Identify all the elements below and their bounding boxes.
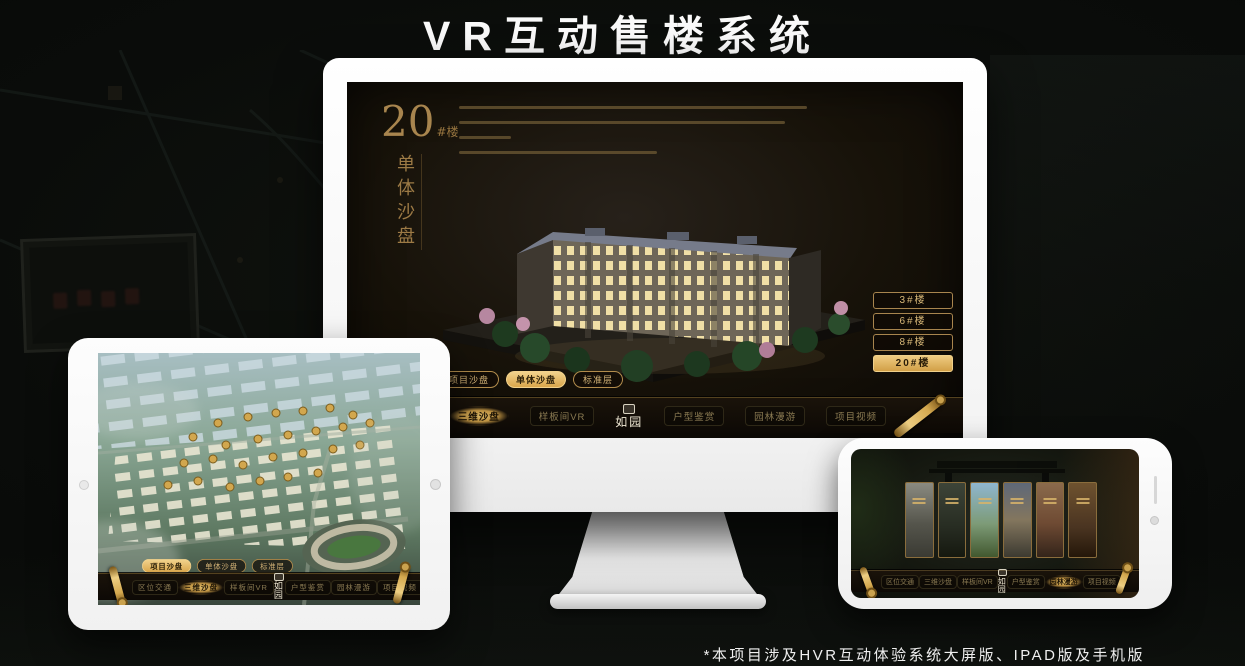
gallery-panel-3[interactable]	[970, 482, 999, 558]
ipad-home-button[interactable]	[430, 479, 441, 490]
nav-item-showroom-vr[interactable]: 样板间VR	[530, 406, 595, 426]
gallery-panel-6[interactable]	[1068, 482, 1097, 558]
ipad-sandbox-subtabs: 项目沙盘 单体沙盘 标准层	[142, 559, 293, 573]
brand-logo-text: 如园	[615, 416, 643, 428]
phone-frame: 区位交通 三维沙盘 样板间VR 如园 户型鉴赏 园林漫游 项目视频	[838, 438, 1172, 609]
phone-nav-item-garden-roam[interactable]: 园林漫游	[1045, 575, 1083, 589]
nav-item-unit-gallery[interactable]: 户型鉴赏	[664, 406, 724, 426]
ipad-brand-seal-icon	[274, 573, 284, 581]
building-number: 20	[381, 97, 434, 146]
nav-item-project-video[interactable]: 项目视频	[826, 406, 886, 426]
ipad-nav-item-3d-sandbox[interactable]: 三维沙盘	[178, 580, 224, 595]
phone-screen: 区位交通 三维沙盘 样板间VR 如园 户型鉴赏 园林漫游 项目视频	[851, 449, 1139, 598]
floor-selector: 3#楼 6#楼 8#楼 20#楼	[873, 292, 953, 372]
sandbox-subtabs: 项目沙盘 单体沙盘 标准层	[439, 371, 623, 388]
section-title-vertical: 单体沙盘	[391, 154, 422, 250]
subtab-single-sandbox[interactable]: 单体沙盘	[506, 371, 566, 388]
phone-brand-logo: 如园	[998, 569, 1007, 594]
phone-nav-item-showroom-vr[interactable]: 样板间VR	[957, 575, 998, 589]
ipad-nav-item-garden-roam[interactable]: 园林漫游	[331, 580, 377, 595]
ipad-nav-item-showroom-vr[interactable]: 样板间VR	[224, 580, 274, 595]
floor-button-8[interactable]: 8#楼	[873, 334, 953, 351]
building-number-heading: 20#楼	[381, 100, 459, 144]
nav-item-garden-roam[interactable]: 园林漫游	[745, 406, 805, 426]
floor-button-3[interactable]: 3#楼	[873, 292, 953, 309]
subtab-standard-floor[interactable]: 标准层	[573, 371, 623, 388]
ipad-nav-item-unit-gallery[interactable]: 户型鉴赏	[285, 580, 331, 595]
brand-seal-icon	[623, 404, 635, 414]
background-photo-right	[990, 55, 1245, 435]
ipad-subtab-single-sandbox[interactable]: 单体沙盘	[197, 559, 246, 573]
gallery-panel-4[interactable]	[1003, 482, 1032, 558]
page-title: VR互动售楼系统	[0, 2, 1245, 62]
brand-logo: 如园	[615, 404, 643, 428]
gallery-panel-5[interactable]	[1036, 482, 1065, 558]
ipad-screen: 项目沙盘 单体沙盘 标准层 区位交通 三维沙盘 样板间VR 如园 户型鉴赏 园林…	[98, 353, 420, 605]
ipad-frame: 项目沙盘 单体沙盘 标准层 区位交通 三维沙盘 样板间VR 如园 户型鉴赏 园林…	[68, 338, 450, 630]
phone-nav-item-location-traffic[interactable]: 区位交通	[881, 575, 919, 589]
ipad-brand-logo-text: 如园	[274, 583, 285, 601]
ipad-subtab-project-sandbox[interactable]: 项目沙盘	[142, 559, 191, 573]
promo-canvas: VR互动售楼系统 20#楼 单体沙盘	[0, 0, 1245, 666]
floor-button-20[interactable]: 20#楼	[873, 355, 953, 372]
phone-main-navbar: 区位交通 三维沙盘 样板间VR 如园 户型鉴赏 园林漫游 项目视频	[851, 570, 1139, 592]
phone-brand-logo-text: 如园	[998, 578, 1007, 594]
ipad-brand-logo: 如园	[274, 573, 285, 601]
scene-gallery	[905, 482, 1097, 558]
description-text-blurred	[459, 106, 807, 166]
ipad-main-navbar: 区位交通 三维沙盘 样板间VR 如园 户型鉴赏 园林漫游 项目视频	[98, 573, 420, 600]
phone-nav-item-unit-gallery[interactable]: 户型鉴赏	[1007, 575, 1045, 589]
phone-nav-item-3d-sandbox[interactable]: 三维沙盘	[919, 575, 957, 589]
background-plaque	[20, 233, 200, 353]
phone-nav-item-project-video[interactable]: 项目视频	[1083, 575, 1121, 589]
phone-speaker-slot	[1154, 476, 1157, 504]
ipad-nav-item-location-traffic[interactable]: 区位交通	[132, 580, 178, 595]
phone-brand-seal-icon	[998, 569, 1007, 576]
ipad-camera-icon	[79, 480, 89, 490]
floor-button-6[interactable]: 6#楼	[873, 313, 953, 330]
building-number-suffix: #楼	[436, 125, 458, 139]
footnote: *本项目涉及HVR互动体验系统大屏版、IPAD版及手机版	[704, 644, 1145, 665]
ipad-subtab-standard-floor[interactable]: 标准层	[252, 559, 293, 573]
building-model-render	[435, 168, 871, 386]
monitor-stand	[556, 510, 760, 598]
phone-camera-icon	[1150, 516, 1159, 525]
nav-item-3d-sandbox[interactable]: 三维沙盘	[449, 406, 509, 426]
gallery-panel-1[interactable]	[905, 482, 934, 558]
monitor-base	[550, 594, 766, 609]
gallery-panel-2[interactable]	[938, 482, 967, 558]
